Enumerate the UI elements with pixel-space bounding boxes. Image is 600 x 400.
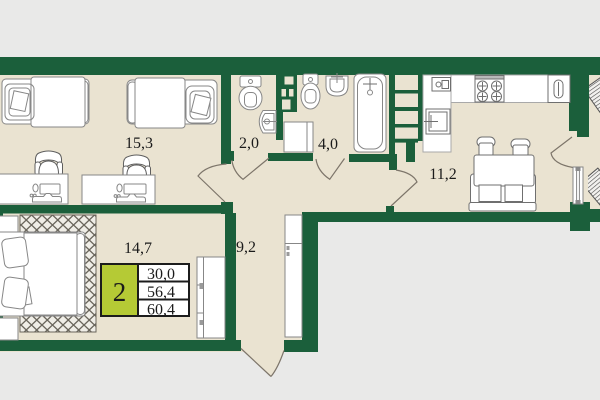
svg-text:60,4: 60,4 — [147, 302, 175, 319]
svg-text:15,3: 15,3 — [125, 135, 153, 152]
svg-text:2,0: 2,0 — [239, 135, 259, 152]
svg-text:30,0: 30,0 — [147, 266, 175, 283]
svg-text:56,4: 56,4 — [147, 284, 175, 301]
svg-text:2: 2 — [113, 277, 127, 307]
svg-text:14,7: 14,7 — [124, 240, 152, 257]
svg-text:4,0: 4,0 — [318, 136, 338, 153]
svg-text:9,2: 9,2 — [236, 239, 256, 256]
svg-text:11,2: 11,2 — [429, 166, 456, 183]
